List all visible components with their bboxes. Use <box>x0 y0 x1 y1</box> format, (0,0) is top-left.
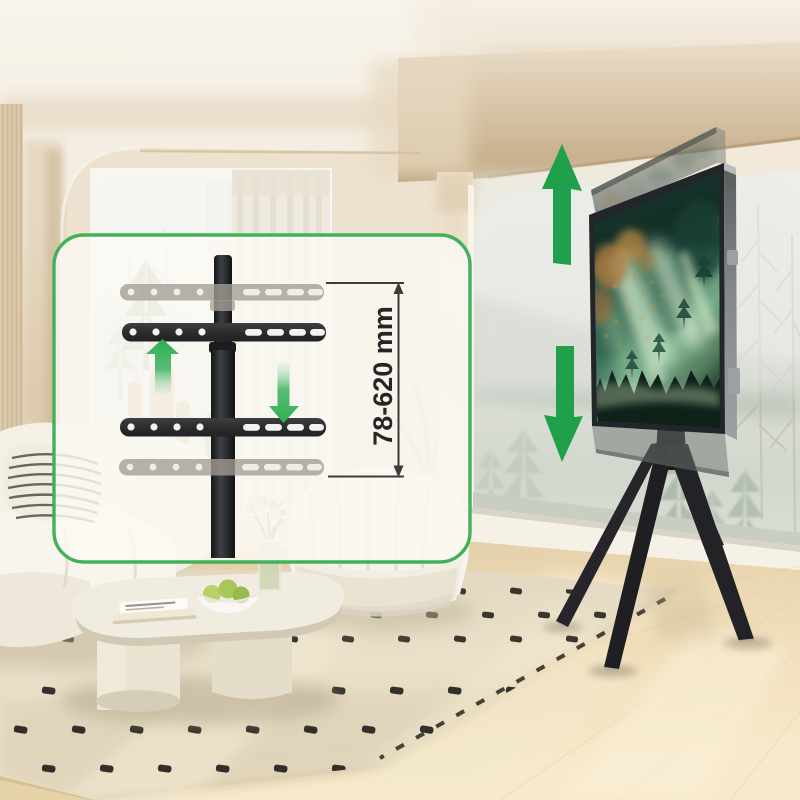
svg-text:78-620 mm: 78-620 mm <box>368 306 398 446</box>
